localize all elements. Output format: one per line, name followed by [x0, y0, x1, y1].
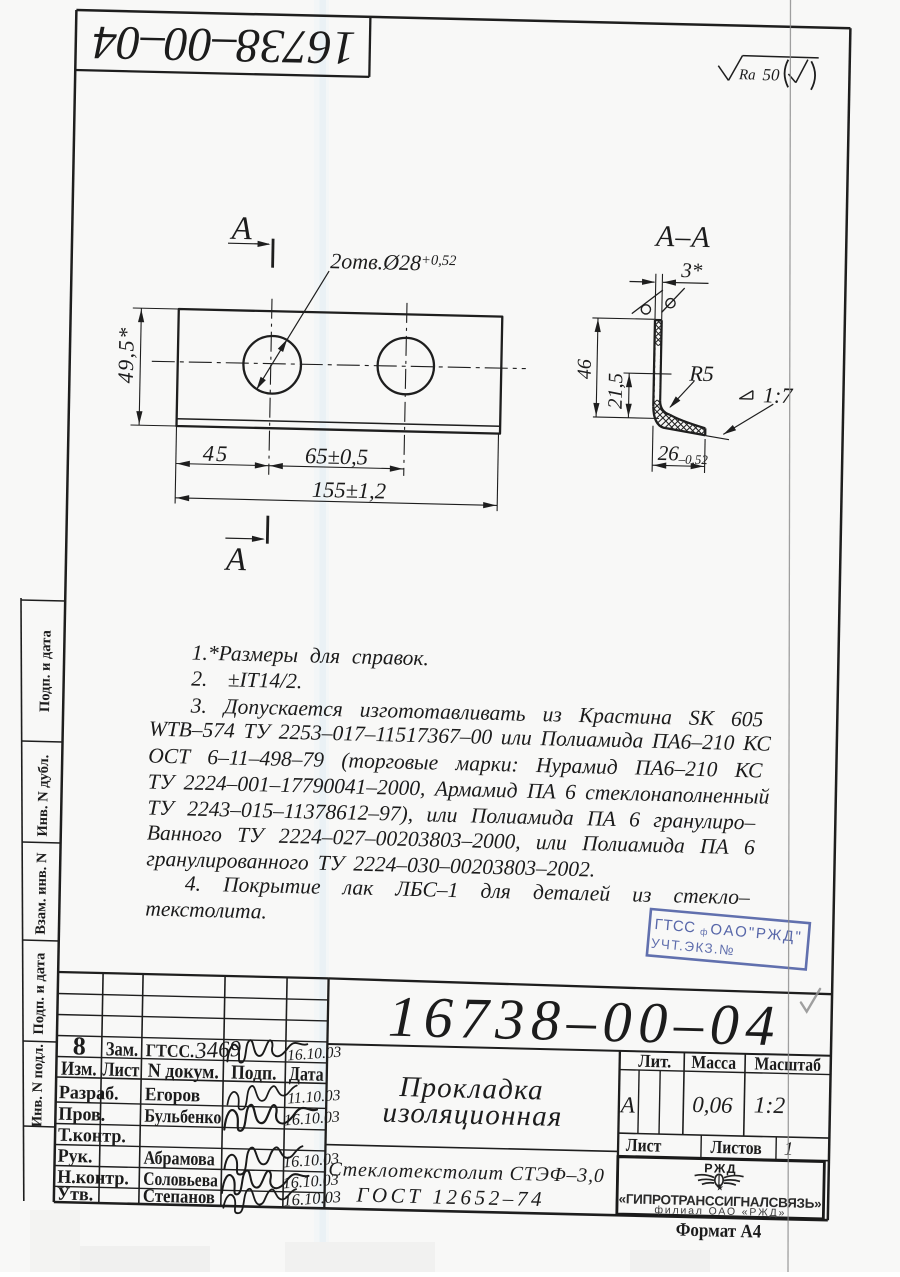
svg-text:45: 45	[203, 441, 230, 467]
svg-text:Егоров: Егоров	[145, 1083, 201, 1105]
svg-text:Подп.: Подп.	[231, 1062, 277, 1085]
svg-text:Подп. и дата: Подп. и дата	[37, 629, 55, 712]
svg-text:Абрамова: Абрамова	[143, 1146, 215, 1169]
svg-text:текстолита.: текстолита.	[145, 897, 267, 924]
svg-text:Листов: Листов	[710, 1137, 762, 1159]
svg-text:Лист: Лист	[626, 1135, 662, 1156]
svg-text:Подп. и дата: Подп. и дата	[31, 952, 49, 1035]
svg-text:A–A: A–A	[654, 220, 711, 254]
svg-text:16738–00–04: 16738–00–04	[387, 984, 781, 1059]
svg-text:46: 46	[574, 359, 596, 379]
svg-text:8: 8	[72, 1031, 86, 1060]
svg-text:16738–00–04: 16738–00–04	[90, 15, 356, 74]
svg-text:Утв.: Утв.	[57, 1183, 94, 1205]
svg-text:Пров.: Пров.	[58, 1103, 105, 1126]
svg-text:Лит.: Лит.	[638, 1050, 672, 1072]
svg-text:A: A	[229, 211, 253, 248]
svg-text:49,5*: 49,5*	[113, 326, 139, 383]
svg-text:Взам. инв. N: Взам. инв. N	[33, 852, 51, 935]
svg-text:155±1,2: 155±1,2	[312, 477, 387, 504]
svg-text:Бульбенко: Бульбенко	[144, 1104, 222, 1127]
svg-text:16.10.03: 16.10.03	[283, 1187, 342, 1210]
svg-text:R5: R5	[688, 361, 714, 387]
svg-text:★: ★	[716, 1183, 724, 1193]
svg-text:Лист: Лист	[102, 1058, 140, 1081]
svg-text:Разраб.: Разраб.	[59, 1082, 119, 1105]
svg-text:Инв. N дубл.: Инв. N дубл.	[35, 755, 53, 837]
svg-text:Ra: Ra	[738, 67, 756, 83]
svg-text:Дата: Дата	[289, 1062, 324, 1085]
svg-text:Степанов: Степанов	[143, 1185, 216, 1208]
svg-text:Изм.: Изм.	[61, 1057, 97, 1080]
svg-text:Инв. N подл.: Инв. N подл.	[29, 1044, 47, 1127]
svg-text:изоляционная: изоляционная	[382, 1097, 563, 1133]
svg-text:Рук.: Рук.	[57, 1145, 92, 1167]
svg-text:Т.контр.: Т.контр.	[58, 1124, 126, 1147]
svg-text:3*: 3*	[680, 258, 703, 283]
svg-text:А: А	[619, 1092, 637, 1117]
svg-text:50: 50	[762, 65, 780, 84]
svg-text:65±0,5: 65±0,5	[305, 443, 369, 470]
svg-text:21,5: 21,5	[605, 373, 628, 409]
svg-text:1:2: 1:2	[753, 1092, 785, 1119]
svg-text:Зам.: Зам.	[105, 1038, 138, 1061]
svg-text:N докум.: N докум.	[147, 1060, 219, 1084]
svg-text:ГТСС.: ГТСС.	[145, 1040, 194, 1061]
svg-text:2. ±IT14/2.: 2. ±IT14/2.	[191, 667, 303, 694]
svg-text:Масса: Масса	[691, 1052, 737, 1074]
svg-text:A: A	[224, 542, 248, 579]
svg-text:Формат А4: Формат А4	[675, 1219, 761, 1242]
svg-text:0,06: 0,06	[692, 1092, 733, 1118]
svg-text:3469: 3469	[193, 1036, 242, 1063]
